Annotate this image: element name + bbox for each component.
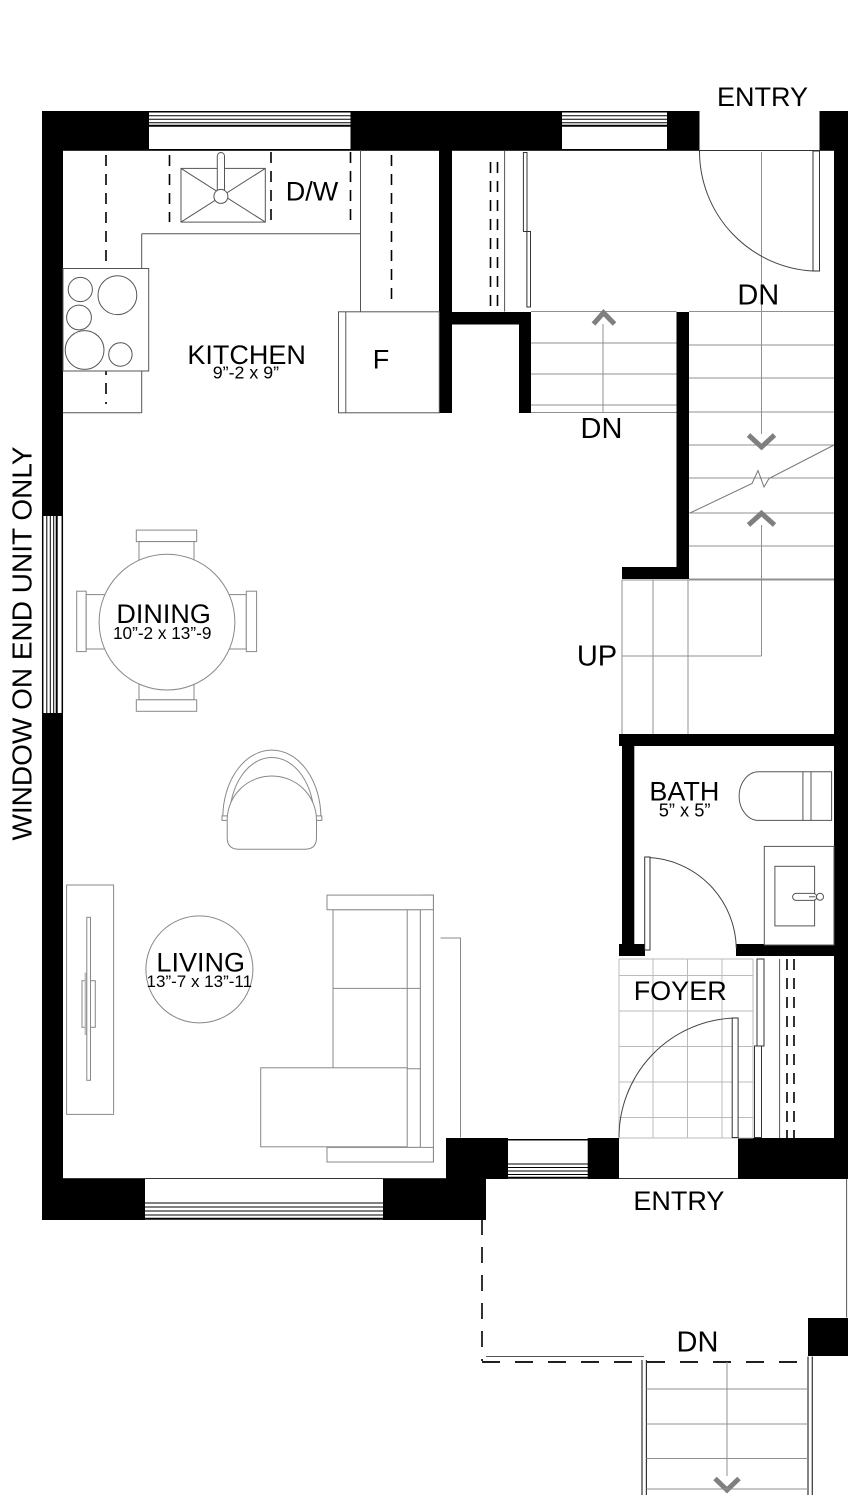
svg-text:DN: DN — [737, 280, 779, 312]
svg-text:FOYER: FOYER — [634, 976, 727, 1006]
svg-text:D/W: D/W — [286, 177, 339, 207]
svg-text:9”-2 x 9”: 9”-2 x 9” — [213, 363, 279, 383]
svg-text:ENTRY: ENTRY — [717, 82, 808, 112]
svg-text:DN: DN — [581, 413, 623, 445]
svg-text:WINDOW ON END UNIT ONLY: WINDOW ON END UNIT ONLY — [7, 446, 38, 840]
svg-text:13”-7 x 13”-11: 13”-7 x 13”-11 — [147, 972, 253, 991]
svg-text:DN: DN — [677, 1327, 719, 1359]
svg-text:5” x 5”: 5” x 5” — [659, 799, 711, 820]
svg-text:UP: UP — [577, 641, 617, 673]
svg-text:F: F — [373, 345, 390, 375]
svg-text:ENTRY: ENTRY — [633, 1186, 724, 1216]
svg-text:10”-2 x 13”-9: 10”-2 x 13”-9 — [113, 623, 211, 643]
